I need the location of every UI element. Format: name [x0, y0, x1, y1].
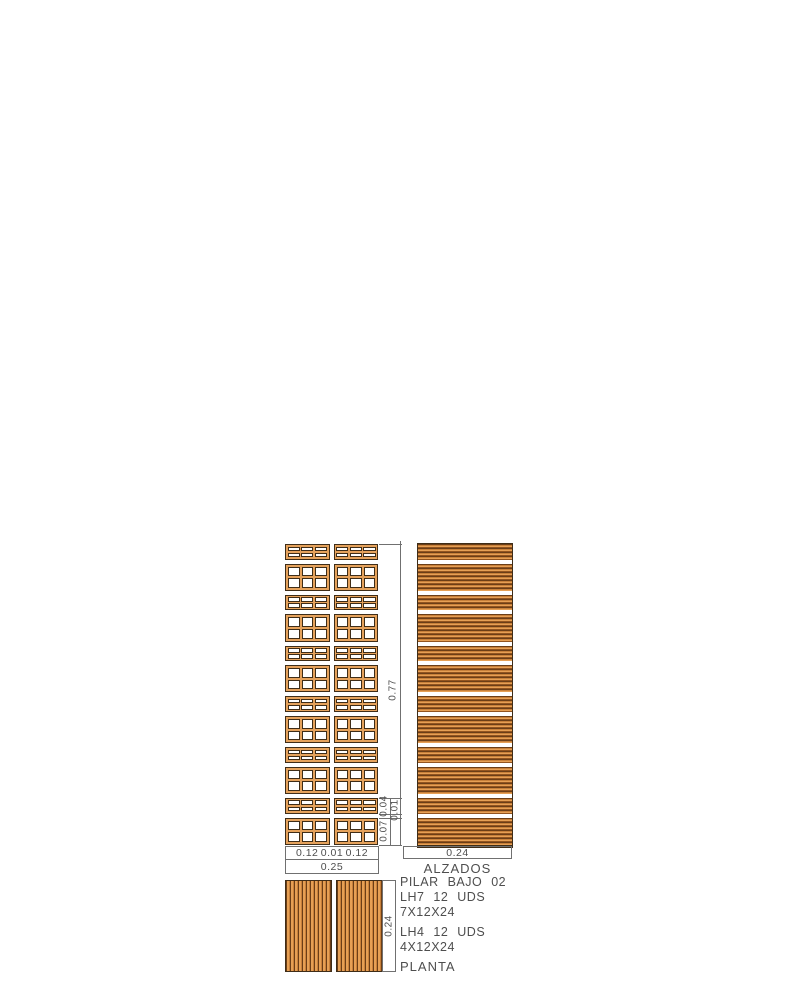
side-course-lh7: [418, 716, 512, 743]
side-course-lh4: [418, 747, 512, 763]
brick-hole: [301, 547, 313, 552]
brick-hole: [288, 832, 300, 842]
brick-course-lh7: [285, 614, 378, 641]
brick-hole: [288, 629, 300, 639]
dim-brick-width-left: 0.12: [295, 847, 319, 859]
brick-course-lh4: [285, 544, 378, 560]
brick-hole: [350, 567, 362, 577]
pillar-name: PILAR BAJO 02: [400, 875, 550, 890]
brick-hole: [302, 770, 314, 780]
brick-hole: [363, 648, 375, 653]
dim-brick-width-right: 0.12: [345, 847, 369, 859]
brick-hole: [288, 756, 300, 761]
lh7-brick: [285, 614, 330, 641]
brick-hole: [364, 668, 376, 678]
dim-plan-depth: 0.24: [384, 915, 395, 936]
brick-hole: [363, 705, 375, 710]
brick-hole: [288, 731, 300, 741]
brick-hole: [301, 597, 313, 602]
lh7-brick: [285, 665, 330, 692]
dim-vertical-joint: 0.01: [320, 847, 344, 859]
brick-hole: [337, 781, 349, 791]
lh4-brick: [285, 696, 330, 712]
side-course-lh7: [418, 665, 512, 692]
brick-hole: [350, 629, 362, 639]
dim-joint: 0.01: [390, 799, 401, 820]
brick-hole: [288, 770, 300, 780]
dim-total-height: 0.77: [388, 679, 399, 700]
brick-hole: [336, 756, 348, 761]
brick-hole: [288, 800, 300, 805]
brick-hole: [363, 807, 375, 812]
lh4-brick: [334, 646, 379, 662]
brick-hole: [363, 800, 375, 805]
brick-hole: [288, 654, 300, 659]
side-course-lh4: [418, 544, 512, 560]
brick-hole: [363, 597, 375, 602]
brick-hole: [337, 770, 349, 780]
brick-hole: [363, 699, 375, 704]
brick-hole: [337, 821, 349, 831]
brick-hole: [363, 654, 375, 659]
brick-hole: [315, 668, 327, 678]
brick-hole: [288, 578, 300, 588]
brick-hole: [337, 832, 349, 842]
brick-course-lh4: [285, 747, 378, 763]
lh7-brick: [334, 665, 379, 692]
brick-hole: [363, 756, 375, 761]
brick-hole: [315, 629, 327, 639]
lh4-units: LH4 12 UDS: [400, 925, 550, 940]
brick-hole: [288, 705, 300, 710]
brick-hole: [336, 654, 348, 659]
brick-hole: [301, 699, 313, 704]
brick-hole: [336, 800, 348, 805]
brick-hole: [302, 629, 314, 639]
brick-hole: [288, 547, 300, 552]
side-course-lh4: [418, 696, 512, 712]
brick-hole: [336, 603, 348, 608]
lh4-brick: [334, 696, 379, 712]
lh4-brick: [334, 747, 379, 763]
brick-hole: [350, 756, 362, 761]
dim-course-lh7: 0.07: [379, 820, 390, 841]
brick-hole: [364, 821, 376, 831]
brick-hole: [336, 553, 348, 558]
side-course-lh7: [418, 614, 512, 641]
brick-hole: [337, 719, 349, 729]
brick-hole: [315, 731, 327, 741]
brick-hole: [288, 648, 300, 653]
brick-hole: [337, 617, 349, 627]
brick-hole: [302, 821, 314, 831]
brick-hole: [350, 807, 362, 812]
brick-hole: [301, 800, 313, 805]
brick-course-lh4: [285, 798, 378, 814]
brick-hole: [288, 781, 300, 791]
brick-hole: [288, 821, 300, 831]
plan-brick-left: [285, 880, 332, 972]
brick-hole: [364, 567, 376, 577]
brick-hole: [315, 547, 327, 552]
brick-hole: [364, 617, 376, 627]
brick-hole: [288, 699, 300, 704]
height-dim-tick-top: [379, 544, 402, 545]
brick-hole: [350, 750, 362, 755]
brick-hole: [301, 648, 313, 653]
brick-hole: [301, 553, 313, 558]
brick-hole: [363, 603, 375, 608]
lh7-size: 7X12X24: [400, 905, 550, 920]
brick-hole: [301, 603, 313, 608]
brick-hole: [364, 629, 376, 639]
brick-hole: [350, 770, 362, 780]
brick-hole: [337, 731, 349, 741]
brick-hole: [302, 719, 314, 729]
brick-hole: [315, 719, 327, 729]
side-course-lh7: [418, 564, 512, 591]
side-elevation: [417, 543, 513, 848]
brick-hole: [315, 821, 327, 831]
side-course-lh4: [418, 646, 512, 662]
brick-hole: [288, 750, 300, 755]
brick-hole: [350, 597, 362, 602]
brick-hole: [288, 807, 300, 812]
brick-hole: [315, 800, 327, 805]
brick-hole: [336, 699, 348, 704]
brick-hole: [302, 578, 314, 588]
lh4-brick: [285, 646, 330, 662]
lh7-units: LH7 12 UDS: [400, 890, 550, 905]
brick-hole: [336, 807, 348, 812]
brick-hole: [302, 781, 314, 791]
lh7-brick: [285, 767, 330, 794]
brick-hole: [336, 648, 348, 653]
plan-brick-right: [336, 880, 383, 972]
lh4-brick: [285, 747, 330, 763]
side-course-lh7: [418, 818, 512, 845]
brick-hole: [337, 680, 349, 690]
title-block: PILAR BAJO 02 LH7 12 UDS 7X12X24 LH4 12 …: [400, 875, 550, 955]
side-course-lh4: [418, 798, 512, 814]
brick-hole: [315, 617, 327, 627]
brick-hole: [288, 597, 300, 602]
brick-hole: [350, 553, 362, 558]
brick-hole: [336, 547, 348, 552]
lh7-brick: [334, 767, 379, 794]
brick-hole: [364, 781, 376, 791]
plan-view: [285, 880, 383, 972]
lh7-brick: [285, 818, 330, 845]
brick-hole: [364, 680, 376, 690]
drawing-canvas: 0.77 0.04 0.01 0.07 0.12 0.01 0.12 0.25 …: [0, 0, 800, 1000]
side-course-lh7: [418, 767, 512, 794]
brick-hole: [350, 547, 362, 552]
brick-hole: [363, 750, 375, 755]
brick-hole: [315, 832, 327, 842]
brick-hole: [337, 668, 349, 678]
course-dim-tick-4: [379, 845, 402, 846]
brick-hole: [302, 567, 314, 577]
brick-hole: [315, 597, 327, 602]
brick-hole: [350, 578, 362, 588]
brick-hole: [315, 750, 327, 755]
brick-hole: [364, 832, 376, 842]
brick-course-lh7: [285, 716, 378, 743]
brick-hole: [350, 648, 362, 653]
brick-hole: [315, 705, 327, 710]
brick-hole: [336, 750, 348, 755]
front-width-dimension: 0.12 0.01 0.12: [285, 846, 379, 860]
brick-course-lh7: [285, 767, 378, 794]
brick-hole: [336, 705, 348, 710]
lh7-brick: [334, 614, 379, 641]
brick-hole: [363, 547, 375, 552]
lh7-brick: [334, 716, 379, 743]
brick-course-lh7: [285, 818, 378, 845]
brick-hole: [302, 680, 314, 690]
brick-hole: [364, 731, 376, 741]
brick-course-lh7: [285, 564, 378, 591]
lh4-brick: [334, 544, 379, 560]
lh4-brick: [285, 798, 330, 814]
brick-hole: [302, 731, 314, 741]
side-course-lh4: [418, 595, 512, 611]
brick-hole: [350, 617, 362, 627]
brick-hole: [350, 719, 362, 729]
lh4-size: 4X12X24: [400, 940, 550, 955]
front-elevation: [285, 544, 378, 845]
brick-hole: [350, 668, 362, 678]
brick-hole: [350, 699, 362, 704]
lh7-brick: [334, 818, 379, 845]
brick-hole: [364, 578, 376, 588]
brick-hole: [363, 553, 375, 558]
brick-hole: [288, 553, 300, 558]
brick-hole: [301, 750, 313, 755]
brick-hole: [315, 603, 327, 608]
elevations-label: ALZADOS: [403, 861, 512, 876]
brick-course-lh4: [285, 696, 378, 712]
plan-label: PLANTA: [400, 959, 456, 974]
lh7-brick: [285, 564, 330, 591]
brick-hole: [350, 731, 362, 741]
brick-hole: [315, 648, 327, 653]
brick-course-lh7: [285, 665, 378, 692]
brick-hole: [350, 821, 362, 831]
brick-hole: [350, 800, 362, 805]
dim-front-total: 0.25: [321, 861, 343, 873]
brick-hole: [315, 807, 327, 812]
brick-hole: [301, 654, 313, 659]
dim-course-lh4: 0.04: [379, 795, 390, 816]
brick-hole: [302, 832, 314, 842]
brick-hole: [315, 553, 327, 558]
brick-hole: [350, 832, 362, 842]
side-width-dimension: 0.24: [403, 846, 512, 859]
brick-hole: [315, 680, 327, 690]
brick-hole: [301, 807, 313, 812]
brick-hole: [337, 629, 349, 639]
brick-hole: [301, 705, 313, 710]
dim-side-width: 0.24: [446, 847, 468, 859]
brick-hole: [288, 603, 300, 608]
brick-course-lh4: [285, 595, 378, 611]
brick-hole: [301, 756, 313, 761]
lh4-brick: [285, 595, 330, 611]
lh4-brick: [334, 798, 379, 814]
brick-hole: [315, 567, 327, 577]
brick-hole: [350, 603, 362, 608]
brick-hole: [350, 654, 362, 659]
brick-hole: [302, 617, 314, 627]
brick-hole: [288, 617, 300, 627]
brick-hole: [315, 699, 327, 704]
lh4-brick: [285, 544, 330, 560]
brick-hole: [336, 597, 348, 602]
brick-hole: [315, 770, 327, 780]
lh7-brick: [334, 564, 379, 591]
brick-hole: [315, 781, 327, 791]
brick-hole: [315, 756, 327, 761]
brick-hole: [350, 680, 362, 690]
brick-hole: [288, 680, 300, 690]
front-total-width-dimension: 0.25: [285, 859, 379, 874]
brick-hole: [350, 705, 362, 710]
brick-hole: [315, 578, 327, 588]
brick-hole: [288, 668, 300, 678]
brick-hole: [315, 654, 327, 659]
brick-hole: [302, 668, 314, 678]
brick-hole: [337, 578, 349, 588]
brick-hole: [364, 719, 376, 729]
brick-hole: [350, 781, 362, 791]
brick-hole: [288, 719, 300, 729]
brick-hole: [288, 567, 300, 577]
brick-hole: [364, 770, 376, 780]
brick-course-lh4: [285, 646, 378, 662]
lh7-brick: [285, 716, 330, 743]
brick-hole: [337, 567, 349, 577]
lh4-brick: [334, 595, 379, 611]
